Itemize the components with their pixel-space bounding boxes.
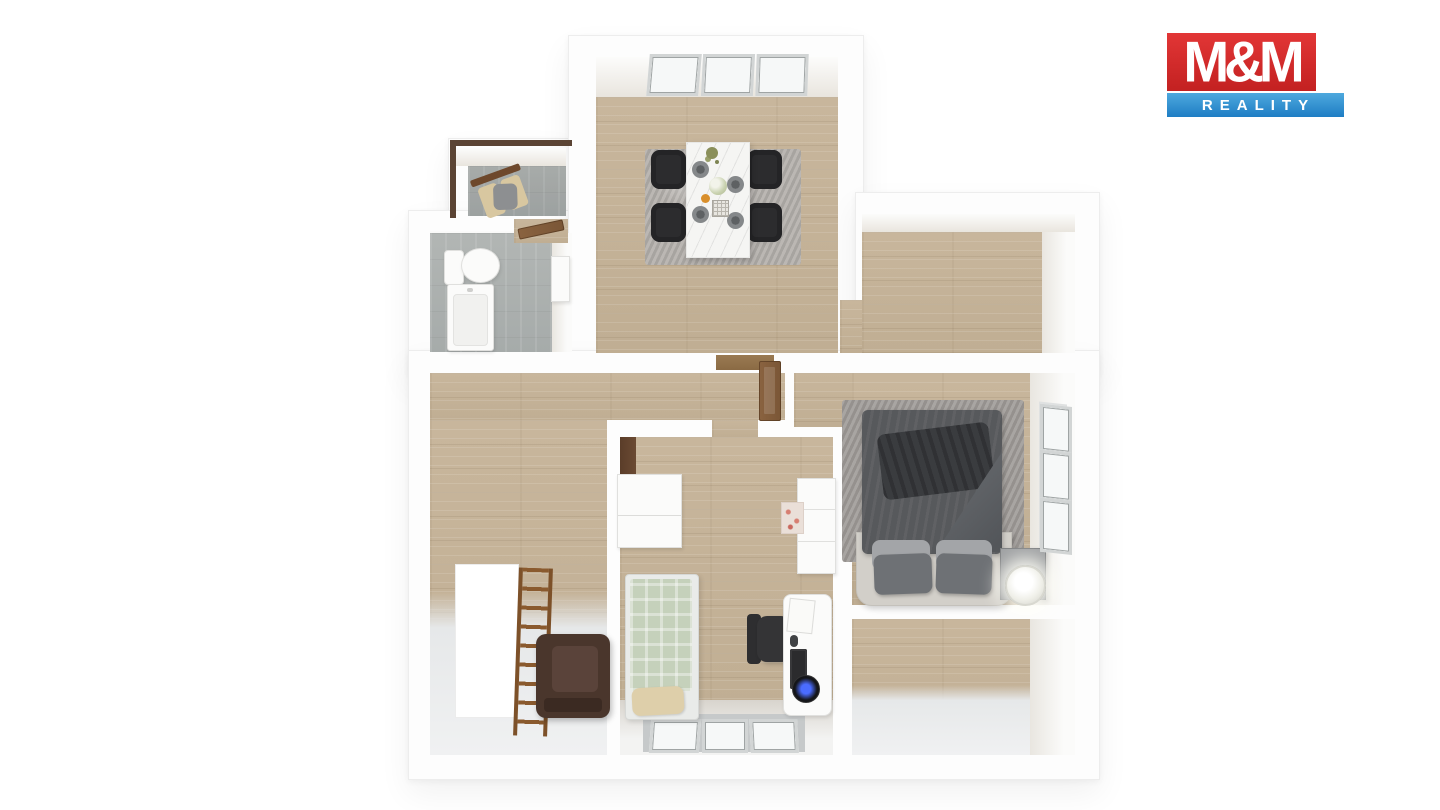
kids-floral-box: [781, 502, 804, 534]
bench-throw: [493, 183, 518, 210]
bed-pillow-front-left: [873, 553, 932, 595]
desk-pc-fan: [792, 675, 820, 703]
room-bottom-right-light: [852, 685, 1030, 755]
armchair-back-cushion: [552, 646, 598, 692]
table-plate-4: [727, 212, 744, 229]
armchair-front-edge: [544, 698, 602, 712]
hallway-floor-upper: [430, 373, 785, 420]
table-plant: [706, 147, 718, 159]
bedroom-window-strip: [1039, 402, 1067, 551]
bathtub-drain: [467, 288, 473, 292]
kids-window-3: [749, 719, 799, 753]
dining-chair-2: [651, 203, 686, 242]
brand-name-top: M&M: [1183, 33, 1299, 90]
brand-logo-banner: REALITY: [1167, 93, 1344, 117]
room-top-right-east-face: [1042, 232, 1075, 353]
kids-dresser: [617, 474, 682, 548]
nightstand-lamp: [1005, 565, 1046, 606]
kids-window-2: [702, 719, 748, 753]
leather-armchair: [536, 634, 610, 718]
dining-to-topright-doorway: [840, 300, 862, 353]
desk-mouse: [790, 635, 798, 647]
kids-window-1: [649, 719, 701, 753]
bathtub-basin: [453, 294, 488, 346]
dining-chair-3: [747, 150, 782, 189]
room-top-right-wall-face: [862, 214, 1075, 232]
dining-window-2: [701, 54, 755, 96]
bedroom-window-3: [1040, 498, 1072, 555]
wardrobe-shelf-line-2: [798, 541, 835, 542]
table-basket: [712, 200, 729, 217]
room-top-right-floor: [862, 232, 1042, 353]
dining-chair-1: [651, 150, 686, 189]
bedroom-window-2: [1040, 450, 1072, 503]
brand-logo: M&M REALITY: [1167, 33, 1345, 117]
dining-chair-4: [747, 203, 782, 242]
toilet-bowl: [461, 248, 500, 283]
stair-opening: [456, 565, 518, 717]
dining-window-3: [755, 54, 808, 96]
kids-bed: [625, 574, 699, 720]
bedroom-door-leaf: [759, 361, 781, 421]
bedroom-window-1: [1040, 404, 1072, 455]
entry-door-frame-top: [450, 140, 572, 146]
door-panel: [764, 367, 775, 414]
bathtub: [447, 284, 494, 351]
room-bottom-right-east-face: [1030, 619, 1075, 755]
table-bowl-orange: [701, 194, 710, 203]
kids-bed-blanket: [630, 579, 692, 691]
table-flowers: [709, 177, 727, 195]
floorplan-render: M&M REALITY: [0, 0, 1440, 810]
table-plate-2: [727, 176, 744, 193]
brand-logo-mark: M&M: [1167, 33, 1316, 91]
kids-corner-shelf: [620, 437, 636, 479]
kids-desk: [783, 594, 832, 716]
kids-room-doorway: [712, 420, 758, 437]
table-plate-1: [692, 161, 709, 178]
bathroom-shelf: [551, 256, 570, 302]
dining-window-1: [646, 54, 702, 96]
dresser-front-line: [618, 515, 681, 516]
bed-pillow-front-right: [935, 553, 992, 595]
table-plate-3: [692, 206, 709, 223]
brand-name-bottom: REALITY: [1196, 97, 1315, 114]
kids-bed-pillow: [631, 686, 684, 717]
desk-papers: [786, 598, 815, 635]
